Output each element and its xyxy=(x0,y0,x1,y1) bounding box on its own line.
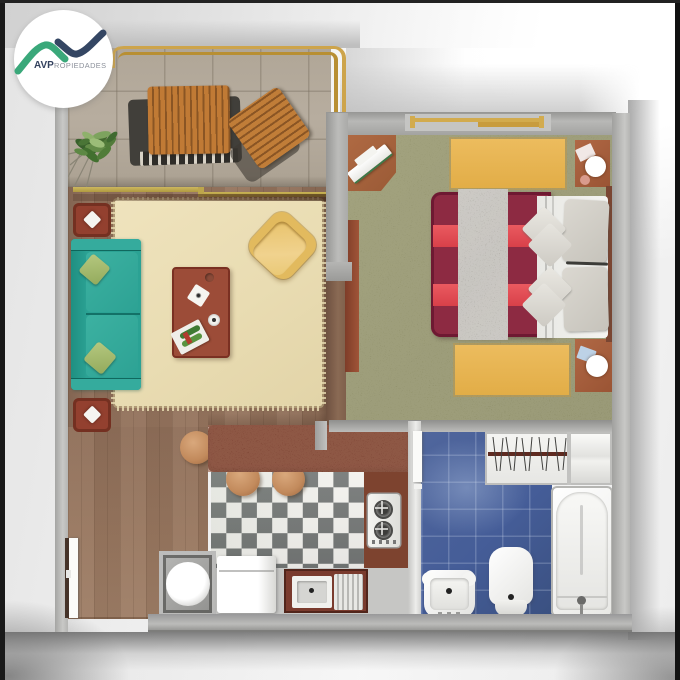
svg-text:ROPIEDADES: ROPIEDADES xyxy=(54,61,106,70)
svg-text:AVP: AVP xyxy=(34,60,54,71)
